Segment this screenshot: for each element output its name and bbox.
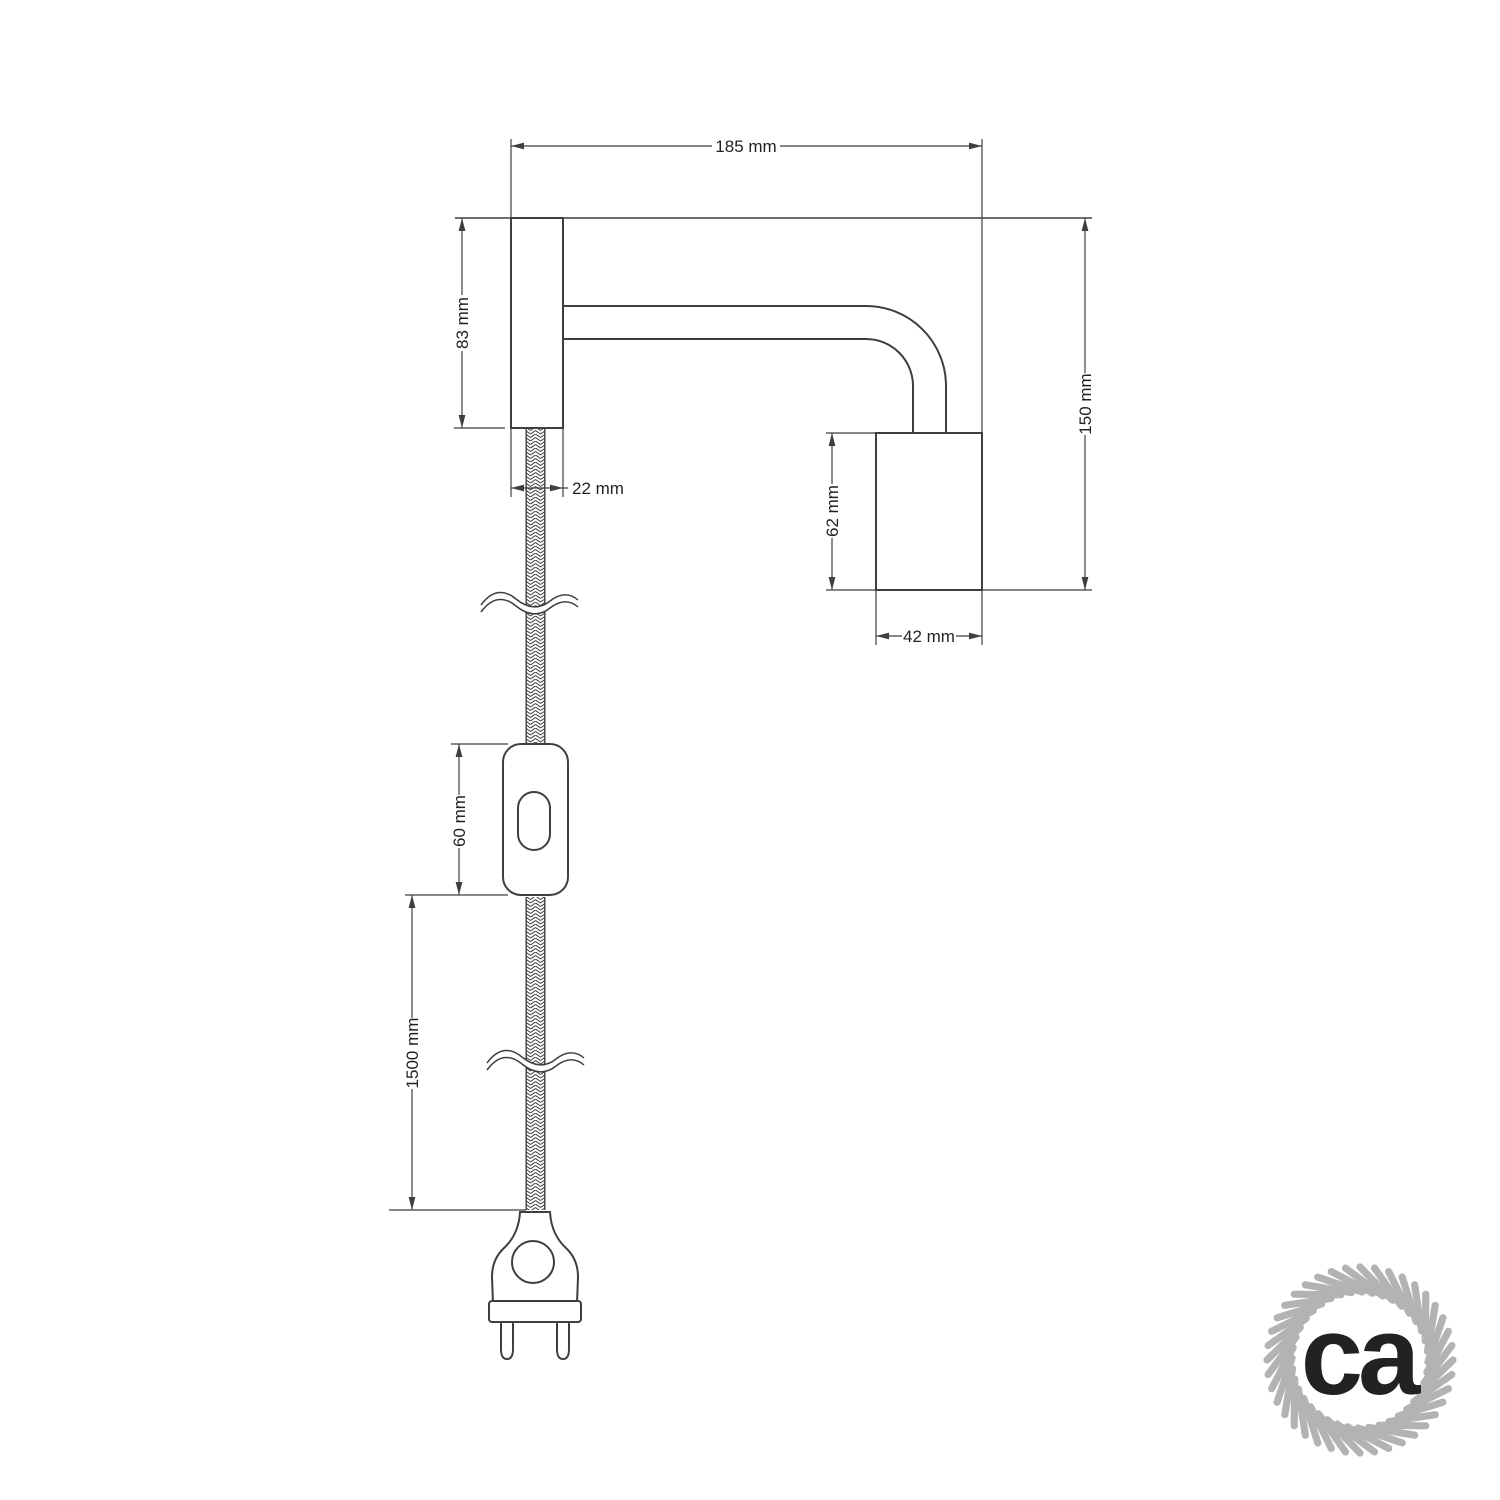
arrow-left	[511, 485, 524, 492]
arrow-left	[876, 633, 889, 640]
arrow-right	[969, 633, 982, 640]
dim-label-switch-length: 60 mm	[450, 795, 469, 847]
dim-label-plate-width: 22 mm	[572, 479, 624, 498]
plug-base-collar	[489, 1301, 581, 1322]
arrow-up	[409, 895, 416, 908]
dim-label-total-width: 185 mm	[715, 137, 776, 156]
rope-strand	[1425, 1294, 1426, 1341]
arrow-right	[969, 143, 982, 150]
plug-prong-left	[501, 1321, 513, 1359]
fabric-cable-lower	[526, 897, 546, 1210]
switch-button	[518, 792, 550, 850]
arrow-down	[409, 1197, 416, 1210]
plug-screw-hole	[512, 1241, 554, 1283]
arrow-up	[456, 744, 463, 757]
rope-strand	[1379, 1425, 1426, 1426]
plug-prong-right	[557, 1321, 569, 1359]
cable-braid-texture	[526, 897, 546, 1210]
arrow-up	[459, 218, 466, 231]
dim-label-plate-height: 83 mm	[453, 297, 472, 349]
dim-label-socket-height: 62 mm	[823, 485, 842, 537]
brand-logo: ca	[1267, 1267, 1453, 1453]
arrow-down	[829, 577, 836, 590]
wall-mount-plate	[511, 218, 563, 428]
arrow-right	[550, 485, 563, 492]
brand-logo-text: ca	[1301, 1293, 1421, 1418]
euro-plug	[489, 1212, 581, 1359]
dimension-lines	[389, 139, 1092, 1210]
rope-strand	[1294, 1379, 1295, 1426]
arrow-up	[1082, 218, 1089, 231]
dim-label-cable-length: 1500 mm	[403, 1018, 422, 1089]
wall-lamp-dimension-diagram: 185 mm 83 mm 22 mm 150 mm 62 mm 42 mm 60…	[0, 0, 1500, 1500]
extension-tube-outer	[563, 306, 946, 433]
arrow-up	[829, 433, 836, 446]
fabric-cable-upper	[526, 428, 546, 745]
ext-lines-total-width	[511, 139, 982, 433]
cable-braid-texture	[526, 428, 546, 745]
arrow-down	[1082, 577, 1089, 590]
dim-label-total-height: 150 mm	[1076, 373, 1095, 434]
extension-tube-inner	[563, 339, 913, 433]
inline-switch	[503, 744, 568, 895]
arrow-down	[459, 415, 466, 428]
arrow-left	[511, 143, 524, 150]
technical-drawing-page: 185 mm 83 mm 22 mm 150 mm 62 mm 42 mm 60…	[0, 0, 1500, 1500]
dim-label-socket-width: 42 mm	[903, 627, 955, 646]
lamp-socket-holder	[876, 433, 982, 590]
arrow-down	[456, 882, 463, 895]
dimension-labels: 185 mm 83 mm 22 mm 150 mm 62 mm 42 mm 60…	[403, 137, 1095, 1088]
